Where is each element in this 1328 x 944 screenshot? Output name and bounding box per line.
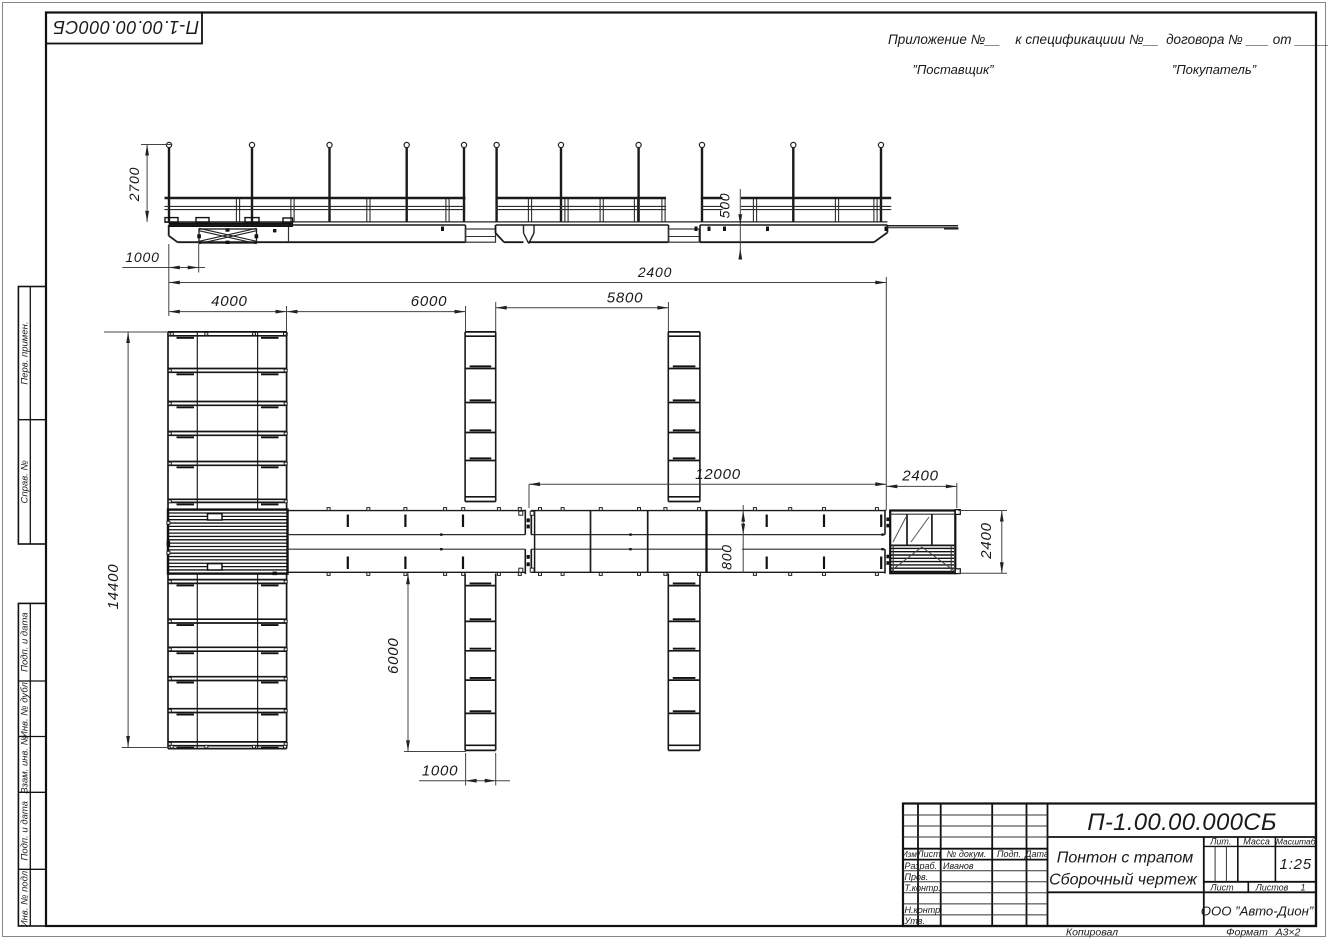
svg-text:1: 1 <box>1300 882 1305 892</box>
svg-text:Утв.: Утв. <box>904 916 925 926</box>
svg-text:2400: 2400 <box>637 264 672 280</box>
svg-text:2400: 2400 <box>978 522 995 560</box>
svg-text:Подп. и дата: Подп. и дата <box>20 612 31 671</box>
svg-text:Масса: Масса <box>1243 836 1270 846</box>
svg-text:6000: 6000 <box>411 293 448 310</box>
svg-text:Н.контр.: Н.контр. <box>905 905 943 915</box>
svg-text:П-1.00.00.000СБ: П-1.00.00.000СБ <box>53 17 199 37</box>
svg-text:Инв. № дубл.: Инв. № дубл. <box>20 680 31 738</box>
svg-text:Пров.: Пров. <box>905 872 929 882</box>
svg-text:Лит.: Лит. <box>1209 836 1231 846</box>
svg-text:Листов: Листов <box>1255 882 1289 892</box>
svg-text:Понтон с трапом: Понтон с трапом <box>1057 850 1194 867</box>
svg-text:1000: 1000 <box>422 763 459 780</box>
svg-text:Лист: Лист <box>916 849 941 859</box>
svg-text:Формат: Формат <box>1226 927 1268 939</box>
svg-text:Подп.: Подп. <box>997 849 1021 859</box>
svg-text:2700: 2700 <box>126 167 142 202</box>
svg-text:Инв. № подл.: Инв. № подл. <box>20 868 31 927</box>
svg-text:2400: 2400 <box>901 468 939 485</box>
svg-text:Лист: Лист <box>1209 882 1234 892</box>
svg-text:6000: 6000 <box>385 637 402 674</box>
svg-text:14400: 14400 <box>105 564 122 610</box>
svg-text:5800: 5800 <box>607 290 644 307</box>
svg-text:800: 800 <box>719 544 735 570</box>
svg-text:1000: 1000 <box>125 249 159 265</box>
svg-text:Перв. примен.: Перв. примен. <box>20 322 31 385</box>
svg-text:Приложение №__ к спецификац: Приложение №__ к спецификациии №__ догов… <box>888 32 1328 47</box>
svg-text:А3×2: А3×2 <box>1275 927 1301 939</box>
svg-text:”Поставщик”: ”Поставщик” <box>913 62 995 77</box>
svg-text:Т.контр.: Т.контр. <box>905 883 941 893</box>
svg-text:ООО ”Авто-Дион”: ООО ”Авто-Дион” <box>1201 904 1314 919</box>
svg-text:Подп. и дата: Подп. и дата <box>20 801 31 860</box>
svg-text:Копировал: Копировал <box>1066 927 1118 939</box>
svg-text:Справ. №: Справ. № <box>20 460 31 503</box>
svg-text:№ докум.: № докум. <box>947 849 987 859</box>
svg-text:Разраб.: Разраб. <box>905 861 938 871</box>
svg-text:Взам. инв. №: Взам. инв. № <box>20 735 31 794</box>
svg-text:П-1.00.00.000СБ: П-1.00.00.000СБ <box>1087 809 1277 836</box>
svg-text:Дата: Дата <box>1024 849 1049 859</box>
svg-text:Сборочный чертеж: Сборочный чертеж <box>1049 872 1198 889</box>
svg-text:4000: 4000 <box>211 293 248 310</box>
svg-text:1:25: 1:25 <box>1279 856 1311 873</box>
svg-text:500: 500 <box>717 193 733 219</box>
svg-text:12000: 12000 <box>695 466 741 483</box>
svg-text:”Покупатель”: ”Покупатель” <box>1172 62 1257 77</box>
svg-text:Масштаб: Масштаб <box>1276 836 1317 846</box>
svg-text:Иванов: Иванов <box>943 861 974 871</box>
